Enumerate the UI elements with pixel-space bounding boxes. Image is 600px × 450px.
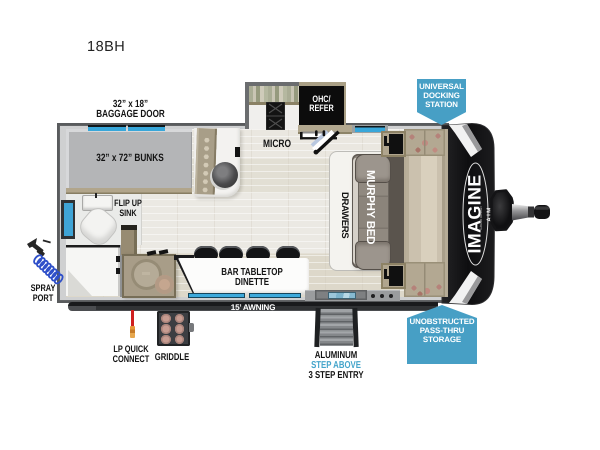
- svg-text:GRAND DESIGN: GRAND DESIGN: [479, 206, 483, 229]
